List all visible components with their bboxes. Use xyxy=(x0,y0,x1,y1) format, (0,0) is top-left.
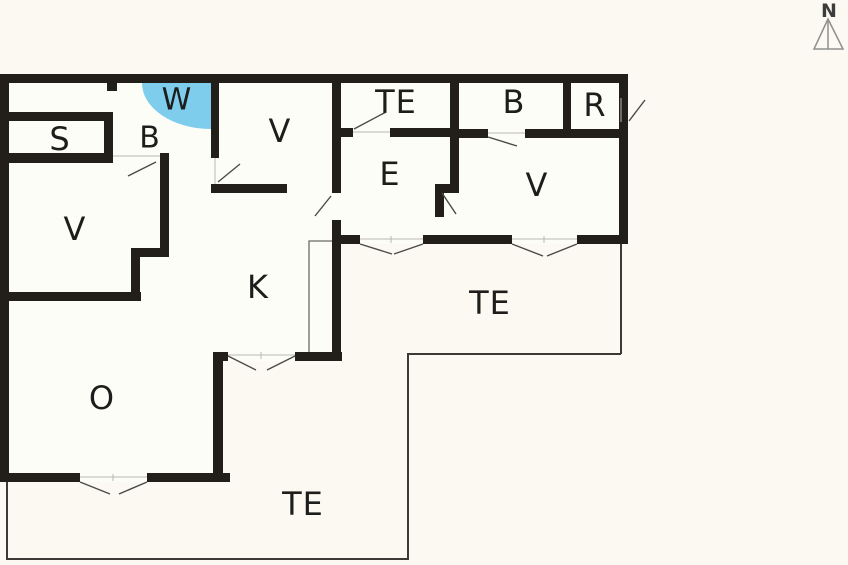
wall-vmid-left xyxy=(211,83,219,158)
wall-vleft-o-divider xyxy=(0,292,141,301)
wall-top-outer xyxy=(0,74,628,83)
wall-south-mid-right xyxy=(577,235,628,244)
room-label-te-bottom: TE xyxy=(281,485,324,523)
wall-ev-divider xyxy=(435,193,444,217)
room-label-k: K xyxy=(247,268,269,306)
room-label-v-left: V xyxy=(64,210,87,248)
wall-k-bottom-right xyxy=(295,352,342,361)
wall-center-upper xyxy=(332,83,341,193)
wall-te-e-divider-left xyxy=(332,128,353,137)
wall-entry-stub xyxy=(107,83,117,91)
room-label-o: O xyxy=(89,379,115,417)
room-label-w: W xyxy=(162,83,193,118)
north-arrow-icon xyxy=(814,19,843,49)
wall-left-outer xyxy=(0,74,9,482)
wall-o-bottom-left xyxy=(0,473,80,482)
door-e-terrace-right-leaf xyxy=(394,244,423,254)
wall-right-outer xyxy=(619,74,628,244)
room-label-v-right: V xyxy=(526,166,549,204)
door-vright-terrace-right-leaf xyxy=(547,244,577,256)
wall-south-mid-left xyxy=(332,235,360,244)
floorplan-page: { "colors": { "background": "#fbf9f1", "… xyxy=(0,0,848,565)
door-vright-terrace-left-leaf xyxy=(512,244,543,256)
wall-ev-step xyxy=(435,184,459,193)
wall-o-bottom-right xyxy=(147,473,230,482)
door-r-exterior xyxy=(629,100,645,121)
room-label-r: R xyxy=(583,86,606,124)
floorplan-drawing: S B W V V TE E B R V K TE O TE N xyxy=(0,0,848,565)
door-o-terrace-right-leaf xyxy=(119,482,147,494)
door-e-terrace-left-leaf xyxy=(360,244,392,254)
room-label-s: S xyxy=(49,120,70,158)
room-label-v-mid: V xyxy=(269,112,292,150)
wall-hall-vleft xyxy=(160,153,169,257)
compass: N xyxy=(814,0,843,49)
wall-south-mid-center xyxy=(423,235,512,244)
room-label-b-right: B xyxy=(503,83,526,121)
room-label-te-right: TE xyxy=(468,284,511,322)
wall-o-right xyxy=(213,352,223,482)
room-label-b-hall: B xyxy=(139,121,161,156)
wall-vmid-bottom xyxy=(211,184,287,193)
wall-br-bottom-right xyxy=(525,129,628,138)
compass-north-label: N xyxy=(821,0,837,22)
wall-te-e-divider-right xyxy=(390,128,459,137)
wall-br-bottom-left xyxy=(450,129,488,138)
wall-b-r-divider xyxy=(563,83,571,138)
door-o-terrace-left-leaf xyxy=(80,482,110,494)
room-label-e: E xyxy=(379,155,400,193)
room-label-te-top: TE xyxy=(374,83,417,121)
